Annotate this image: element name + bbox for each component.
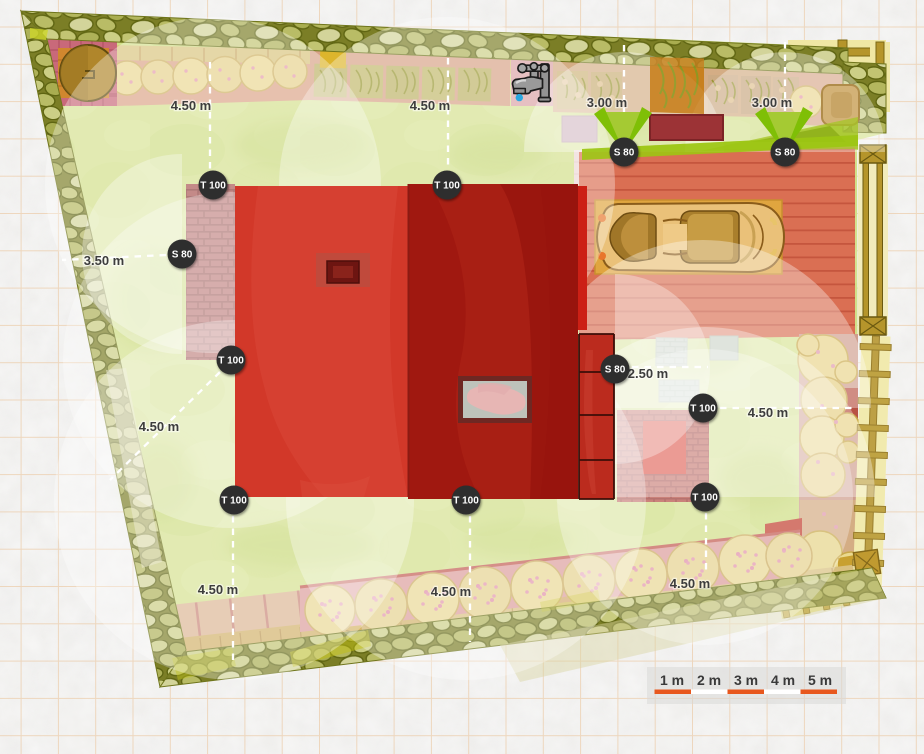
svg-text:3.00 m: 3.00 m: [752, 95, 792, 110]
svg-text:T 100: T 100: [690, 404, 716, 415]
svg-text:S 80: S 80: [605, 365, 626, 376]
svg-text:S 80: S 80: [172, 250, 193, 261]
svg-text:4.50 m: 4.50 m: [171, 98, 211, 113]
svg-text:T 100: T 100: [434, 181, 460, 192]
svg-text:T 100: T 100: [453, 496, 479, 507]
svg-text:3.50 m: 3.50 m: [84, 253, 124, 268]
svg-text:2.50 m: 2.50 m: [628, 366, 668, 381]
svg-text:4.50 m: 4.50 m: [748, 405, 788, 420]
svg-text:T 100: T 100: [200, 181, 226, 192]
svg-text:3.00 m: 3.00 m: [587, 95, 627, 110]
svg-text:4.50 m: 4.50 m: [139, 419, 179, 434]
svg-text:1 m: 1 m: [660, 672, 684, 688]
svg-text:4.50 m: 4.50 m: [670, 576, 710, 591]
svg-text:3 m: 3 m: [734, 672, 758, 688]
svg-text:T 100: T 100: [221, 496, 247, 507]
svg-text:4.50 m: 4.50 m: [198, 582, 238, 597]
svg-text:4.50 m: 4.50 m: [410, 98, 450, 113]
svg-text:4.50 m: 4.50 m: [431, 584, 471, 599]
svg-text:S 80: S 80: [614, 148, 635, 159]
svg-text:S 80: S 80: [775, 148, 796, 159]
svg-text:2 m: 2 m: [697, 672, 721, 688]
svg-text:5 m: 5 m: [808, 672, 832, 688]
svg-text:T 100: T 100: [218, 356, 244, 367]
svg-text:4 m: 4 m: [771, 672, 795, 688]
svg-text:T 100: T 100: [692, 493, 718, 504]
